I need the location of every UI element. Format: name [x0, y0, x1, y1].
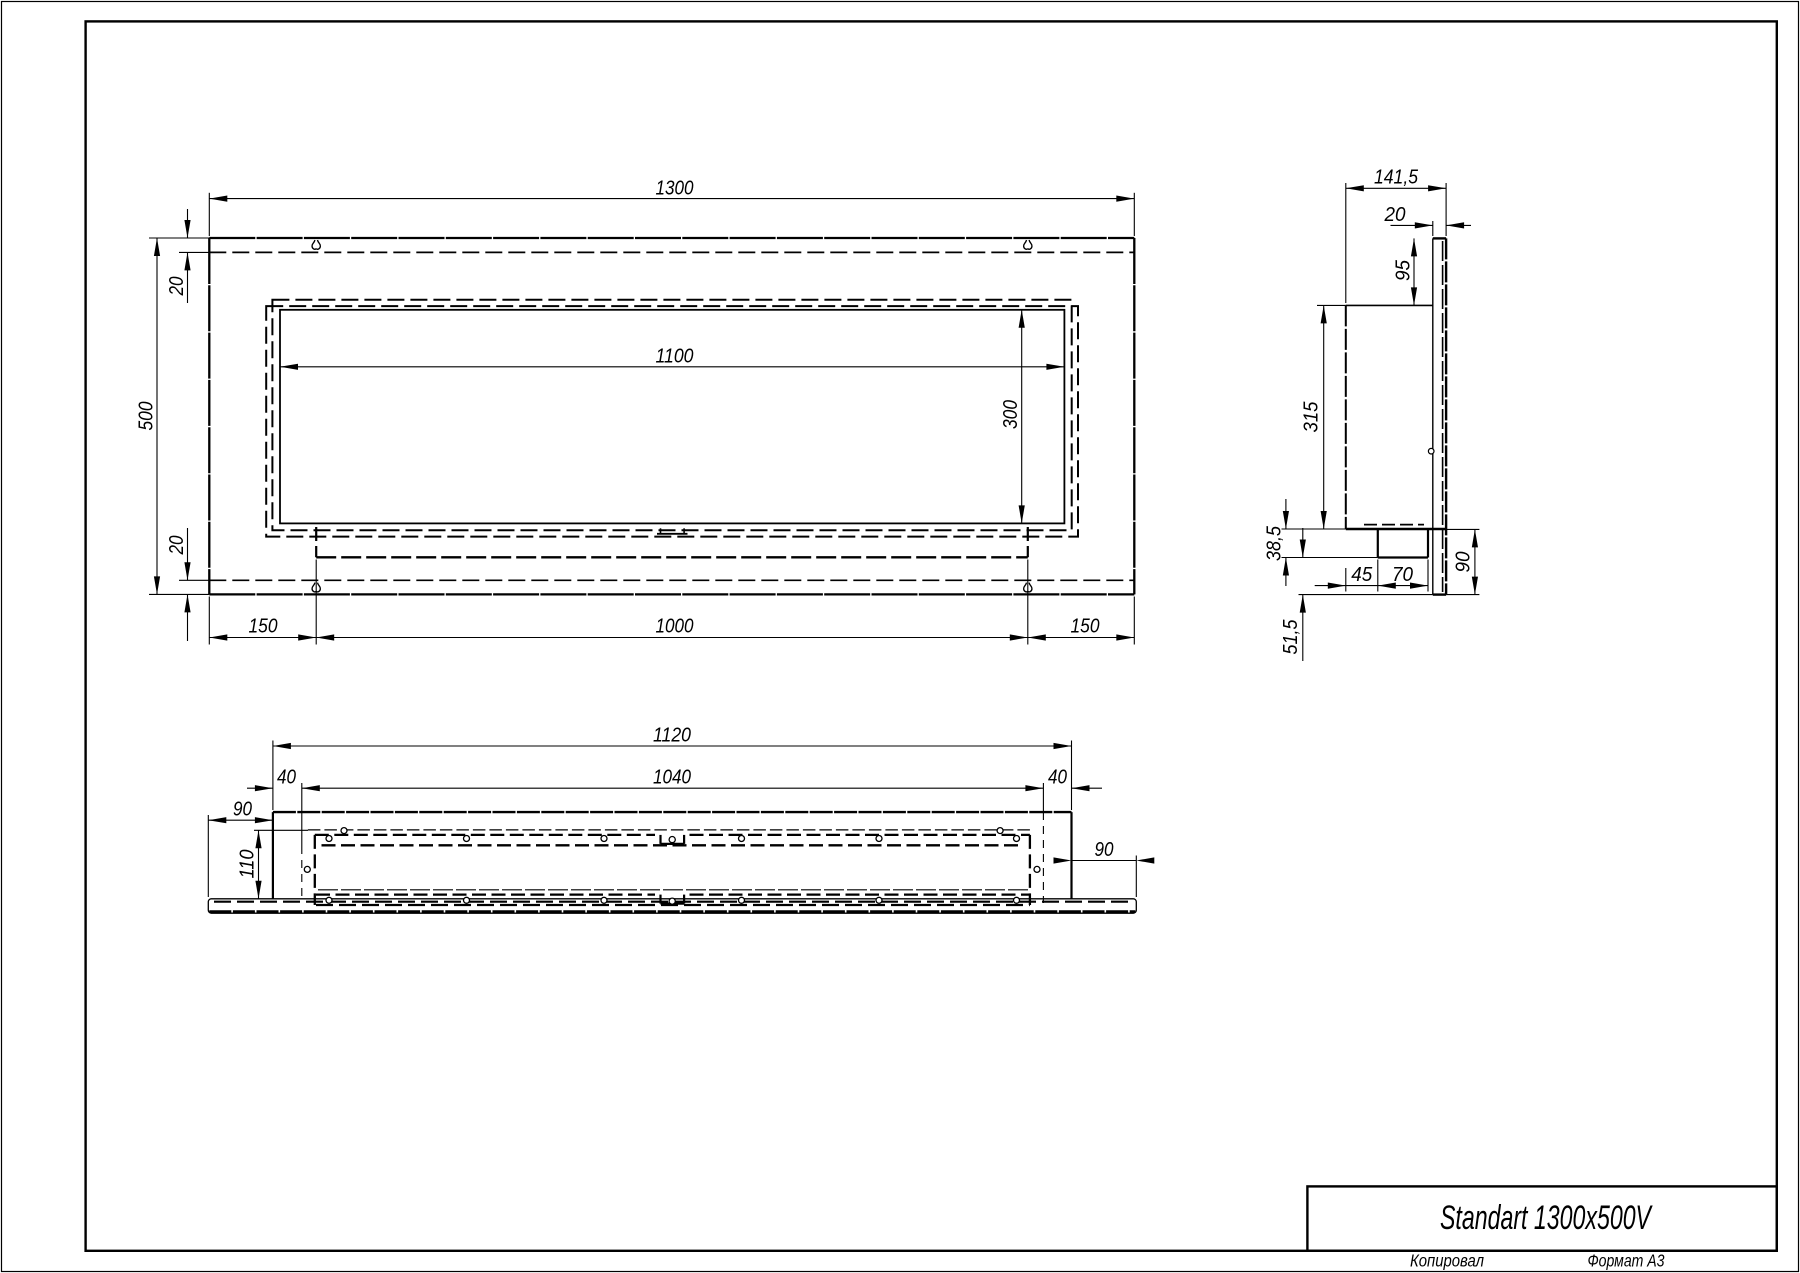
svg-text:20: 20	[166, 536, 188, 556]
svg-text:95: 95	[1392, 259, 1414, 281]
svg-text:1120: 1120	[653, 725, 691, 747]
svg-text:20: 20	[1384, 204, 1406, 226]
svg-text:90: 90	[1452, 552, 1474, 573]
svg-text:20: 20	[166, 277, 188, 297]
svg-text:1100: 1100	[656, 345, 694, 367]
svg-text:1040: 1040	[653, 767, 691, 789]
svg-text:45: 45	[1351, 564, 1373, 586]
svg-text:141,5: 141,5	[1374, 166, 1419, 188]
svg-text:51,5: 51,5	[1280, 619, 1302, 655]
svg-text:1300: 1300	[656, 178, 694, 200]
svg-text:150: 150	[1071, 616, 1100, 638]
svg-text:Формат А3: Формат А3	[1588, 1251, 1665, 1271]
svg-text:Копировал: Копировал	[1410, 1251, 1484, 1271]
svg-text:Standart 1300x500V: Standart 1300x500V	[1440, 1199, 1653, 1237]
svg-text:40: 40	[277, 767, 296, 789]
svg-text:315: 315	[1300, 401, 1322, 433]
svg-text:300: 300	[1000, 400, 1022, 429]
svg-text:38,5: 38,5	[1263, 525, 1285, 561]
svg-text:90: 90	[1095, 839, 1114, 861]
svg-text:70: 70	[1392, 564, 1413, 586]
svg-text:40: 40	[1048, 767, 1067, 789]
svg-text:500: 500	[136, 402, 158, 431]
svg-text:150: 150	[249, 616, 278, 638]
svg-text:110: 110	[237, 850, 259, 879]
svg-text:1000: 1000	[656, 616, 694, 638]
svg-text:90: 90	[233, 798, 252, 820]
